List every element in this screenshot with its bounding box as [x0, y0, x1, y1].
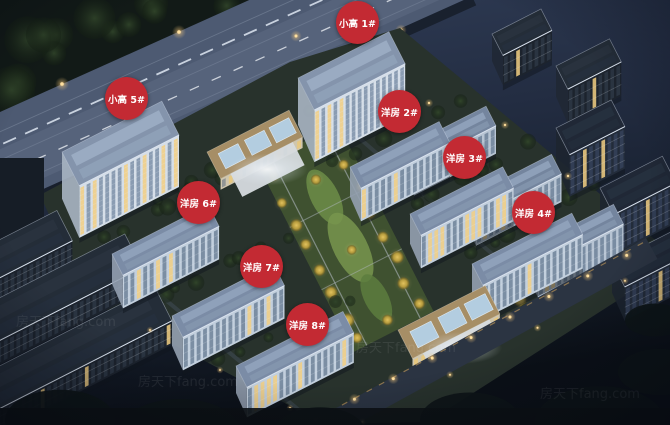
badge-yangfang-7[interactable]: 洋房 7#: [240, 245, 283, 288]
badge-xiaogao-5[interactable]: 小高 5#: [105, 77, 148, 120]
badge-yangfang-8[interactable]: 洋房 8#: [286, 303, 329, 346]
site-rendering: 房天下fang.com房天下fang.com房天下fang.com房天下fang…: [0, 0, 670, 425]
badge-yangfang-2[interactable]: 洋房 2#: [378, 90, 421, 133]
badge-xiaogao-1[interactable]: 小高 1#: [336, 1, 379, 44]
badge-yangfang-4[interactable]: 洋房 4#: [512, 191, 555, 234]
aerial-rendering: 房天下fang.com房天下fang.com房天下fang.com房天下fang…: [0, 0, 670, 425]
badge-yangfang-3[interactable]: 洋房 3#: [443, 136, 486, 179]
vignette: [0, 0, 670, 425]
badge-yangfang-6[interactable]: 洋房 6#: [177, 181, 220, 224]
